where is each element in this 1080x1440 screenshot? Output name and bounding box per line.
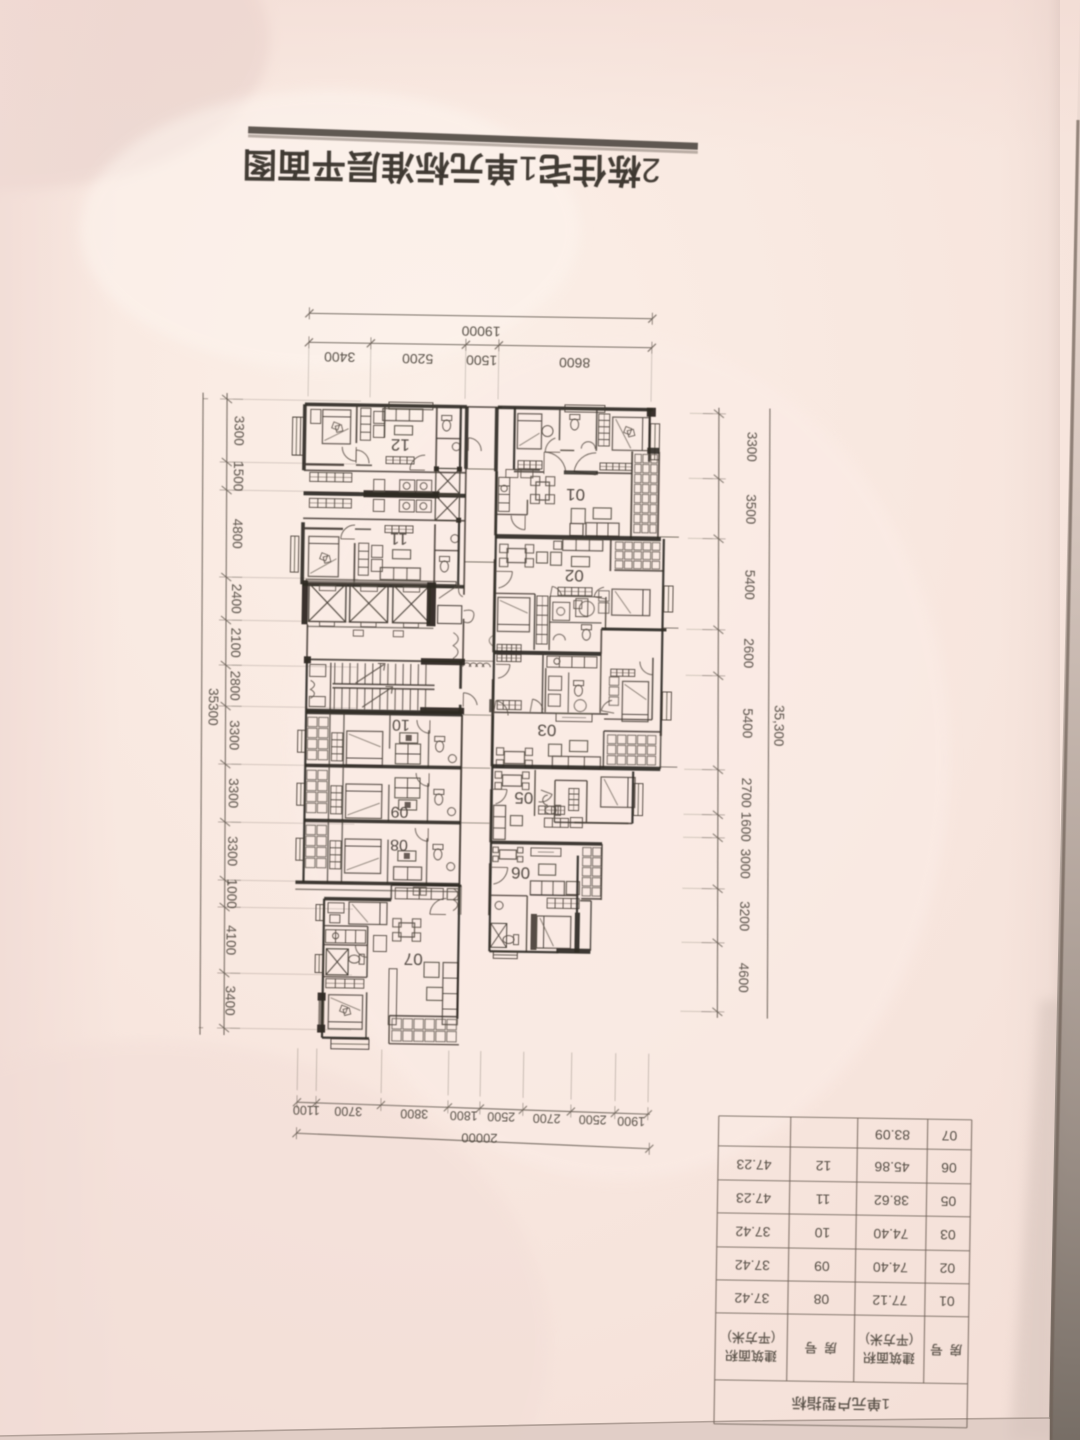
svg-text:2500: 2500 [487,1109,515,1123]
svg-text:): ) [865,1332,870,1347]
svg-text:4600: 4600 [736,963,751,993]
svg-text:2: 2 [641,151,661,189]
svg-text:3300: 3300 [231,416,246,446]
svg-text:37.42: 37.42 [734,1290,769,1307]
svg-text:1000: 1000 [224,879,239,909]
svg-text:2700: 2700 [739,778,754,808]
svg-text:5400: 5400 [740,708,755,738]
svg-text:4100: 4100 [223,925,238,955]
svg-text:10: 10 [814,1225,830,1241]
svg-text:3000: 3000 [737,849,752,879]
svg-text:47.23: 47.23 [736,1190,771,1207]
svg-text:06: 06 [511,863,530,882]
svg-text:3300: 3300 [225,836,240,866]
svg-text:05: 05 [940,1193,956,1209]
svg-text:19000: 19000 [461,323,500,340]
svg-text:08: 08 [390,835,408,852]
svg-text:): ) [727,1330,732,1345]
svg-text:2500: 2500 [579,1112,607,1126]
svg-text:2700: 2700 [533,1111,561,1125]
svg-text:12: 12 [815,1158,831,1174]
svg-text:5200: 5200 [402,351,434,367]
svg-text:35300: 35300 [205,688,221,726]
svg-text:07: 07 [404,949,423,968]
svg-text:02: 02 [565,566,584,585]
svg-text:1800: 1800 [450,1108,478,1122]
svg-text:2400: 2400 [229,584,244,614]
svg-text:1: 1 [882,1395,891,1412]
svg-text:35,300: 35,300 [771,705,787,747]
svg-text:06: 06 [941,1160,957,1176]
svg-text:09: 09 [814,1258,830,1274]
svg-text:5400: 5400 [742,570,757,600]
svg-text:01: 01 [566,485,585,504]
svg-text:77.12: 77.12 [872,1292,907,1309]
svg-text:03: 03 [537,720,556,739]
svg-text:3800: 3800 [400,1106,428,1120]
svg-text:3400: 3400 [222,986,237,1016]
svg-text:1500: 1500 [230,461,245,491]
svg-text:07: 07 [941,1128,957,1144]
svg-text:1600: 1600 [738,812,753,842]
svg-text:37.42: 37.42 [735,1257,770,1274]
svg-text:4800: 4800 [230,519,245,549]
svg-text:3500: 3500 [743,494,758,524]
svg-text:47.23: 47.23 [736,1156,771,1173]
svg-text:11: 11 [815,1191,830,1207]
svg-text:1500: 1500 [466,352,498,368]
svg-text:3400: 3400 [324,349,356,365]
svg-text:2100: 2100 [228,628,243,658]
svg-text:03: 03 [940,1227,956,1243]
svg-text:74.40: 74.40 [873,1226,908,1243]
svg-text:45.86: 45.86 [874,1159,909,1176]
svg-text:2800: 2800 [227,671,242,701]
svg-text:8600: 8600 [559,355,591,371]
svg-text:1: 1 [518,149,538,187]
svg-text:11: 11 [390,529,408,548]
svg-text:12: 12 [391,435,410,454]
svg-text:3700: 3700 [334,1104,362,1118]
svg-text:08: 08 [813,1291,829,1307]
svg-text:3300: 3300 [226,778,241,808]
svg-text:37.42: 37.42 [735,1223,770,1240]
svg-text:1100: 1100 [293,1103,320,1117]
svg-text:20000: 20000 [461,1130,497,1146]
svg-text:3300: 3300 [744,432,759,462]
svg-text:38.62: 38.62 [874,1192,909,1209]
svg-text:2600: 2600 [741,638,756,668]
svg-text:3300: 3300 [226,720,241,750]
svg-text:05: 05 [514,788,533,807]
svg-text:01: 01 [939,1293,955,1309]
svg-text:1900: 1900 [617,1114,645,1128]
svg-text:83.09: 83.09 [875,1127,910,1144]
svg-text:09: 09 [390,802,408,819]
svg-text:10: 10 [392,715,410,732]
svg-text:02: 02 [939,1260,955,1276]
svg-text:3200: 3200 [737,901,752,931]
svg-text:74.40: 74.40 [873,1259,908,1276]
